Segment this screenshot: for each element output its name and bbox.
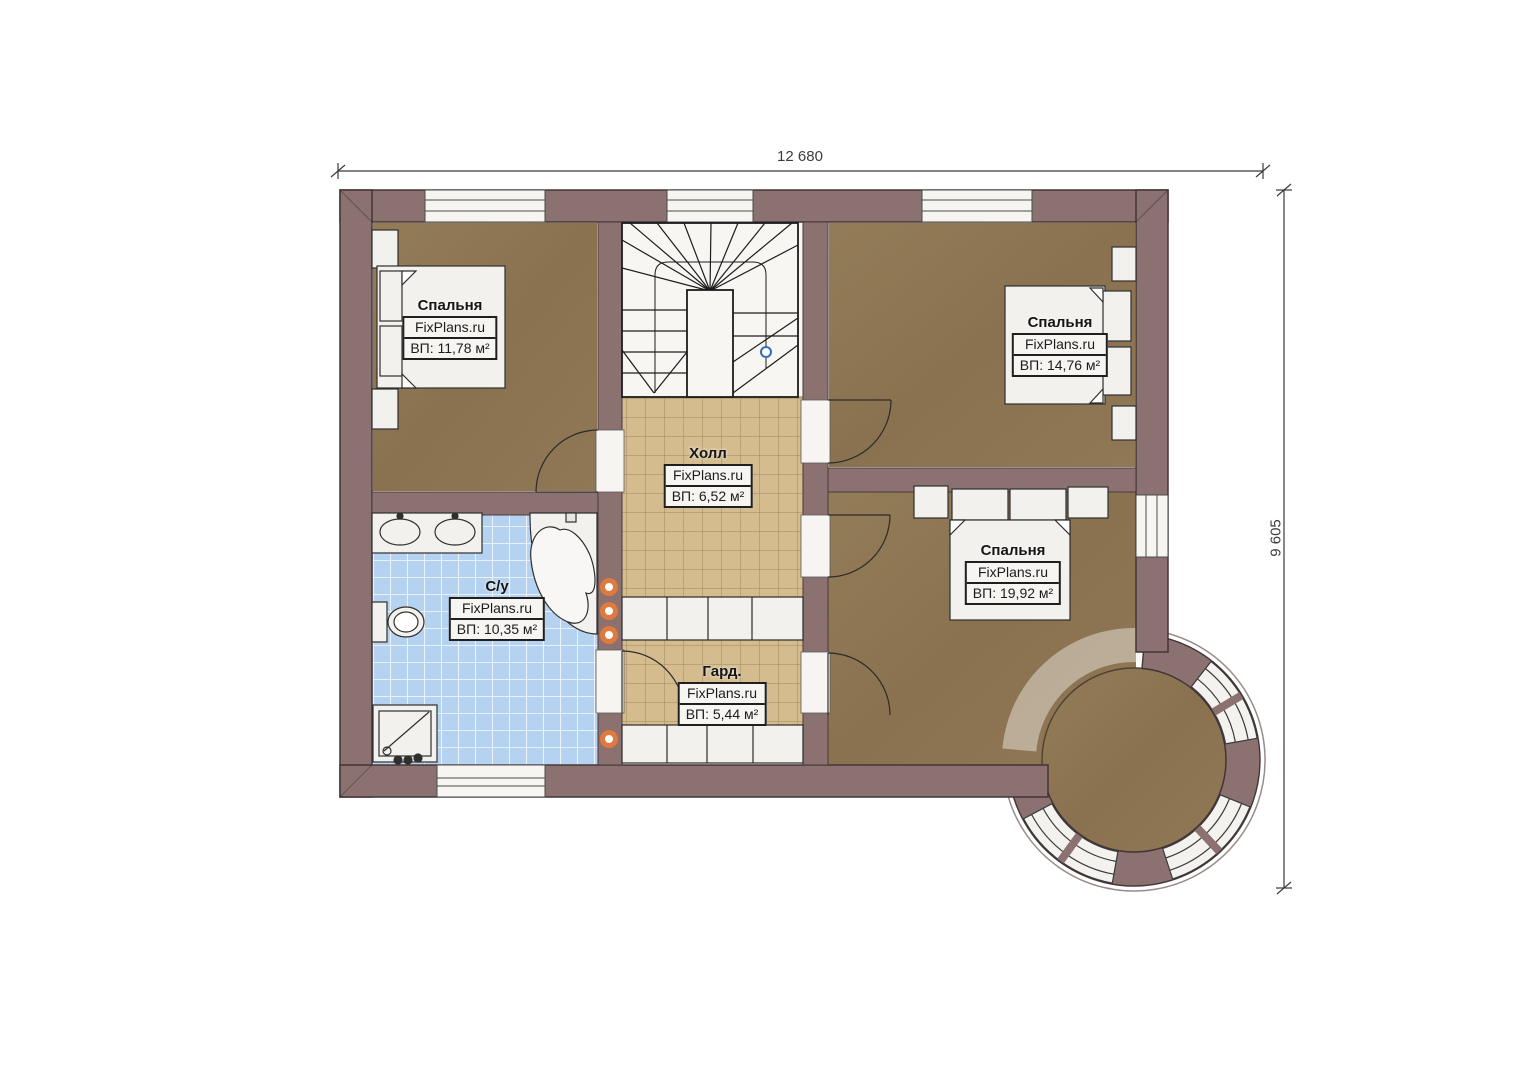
sink-right xyxy=(435,519,475,545)
area-text: ВП: 14,76 м² xyxy=(1014,354,1106,375)
room-info-box: FixPlans.ru ВП: 6,52 м² xyxy=(664,464,753,508)
room-name: Гард. xyxy=(678,663,767,680)
area-text: ВП: 10,35 м² xyxy=(451,618,543,639)
room-label-hall: Холл FixPlans.ru ВП: 6,52 м² xyxy=(664,445,753,508)
floor-plan-page: { "plan": { "dimensions": { "width_label… xyxy=(0,0,1528,1080)
stair-marker xyxy=(761,347,771,357)
area-text: ВП: 19,92 м² xyxy=(967,582,1059,603)
area-text: ВП: 11,78 м² xyxy=(404,337,495,358)
room-info-box: FixPlans.ru ВП: 5,44 м² xyxy=(678,682,767,726)
brand-text: FixPlans.ru xyxy=(404,318,495,337)
brand-text: FixPlans.ru xyxy=(451,599,543,618)
tower-bay xyxy=(1006,630,1265,892)
stair-void xyxy=(687,290,733,397)
area-text: ВП: 5,44 м² xyxy=(680,703,765,724)
wall-bed1-bath xyxy=(372,492,598,515)
staircase xyxy=(622,223,798,397)
window-bottom xyxy=(437,765,545,797)
wall-left xyxy=(340,190,372,797)
window-top-right xyxy=(922,190,1032,222)
tower-floor xyxy=(1042,668,1226,852)
brand-text: FixPlans.ru xyxy=(1014,335,1106,354)
room-info-box: FixPlans.ru ВП: 11,78 м² xyxy=(402,316,497,360)
area-text: ВП: 6,52 м² xyxy=(666,485,751,506)
brand-text: FixPlans.ru xyxy=(680,684,765,703)
room-info-box: FixPlans.ru ВП: 19,92 м² xyxy=(965,561,1061,605)
shower xyxy=(373,705,437,764)
brand-text: FixPlans.ru xyxy=(967,563,1059,582)
room-name: Спальня xyxy=(1012,314,1108,331)
room-info-box: FixPlans.ru ВП: 14,76 м² xyxy=(1012,333,1108,377)
room-label-bedroom-top-left: Спальня FixPlans.ru ВП: 11,78 м² xyxy=(402,297,497,360)
brand-text: FixPlans.ru xyxy=(666,466,751,485)
room-label-wardrobe: Гард. FixPlans.ru ВП: 5,44 м² xyxy=(678,663,767,726)
room-name: Спальня xyxy=(402,297,497,314)
window-top-stair xyxy=(667,190,753,222)
room-info-box: FixPlans.ru ВП: 10,35 м² xyxy=(449,597,545,641)
sink-left xyxy=(380,519,420,545)
dimension-width-label: 12 680 xyxy=(777,148,823,165)
window-top-left xyxy=(425,190,545,222)
room-name: Холл xyxy=(664,445,753,462)
dimension-height-label: 9 605 xyxy=(1268,519,1285,557)
room-label-bedroom-top-right: Спальня FixPlans.ru ВП: 14,76 м² xyxy=(1012,314,1108,377)
floor-plan-drawing xyxy=(0,0,1528,1080)
wall-right xyxy=(1136,190,1168,652)
room-name: С/у xyxy=(449,578,545,595)
room-label-bathroom: С/у FixPlans.ru ВП: 10,35 м² xyxy=(449,578,545,641)
room-label-bedroom-right: Спальня FixPlans.ru ВП: 19,92 м² xyxy=(965,542,1061,605)
window-right xyxy=(1136,495,1168,557)
room-name: Спальня xyxy=(965,542,1061,559)
